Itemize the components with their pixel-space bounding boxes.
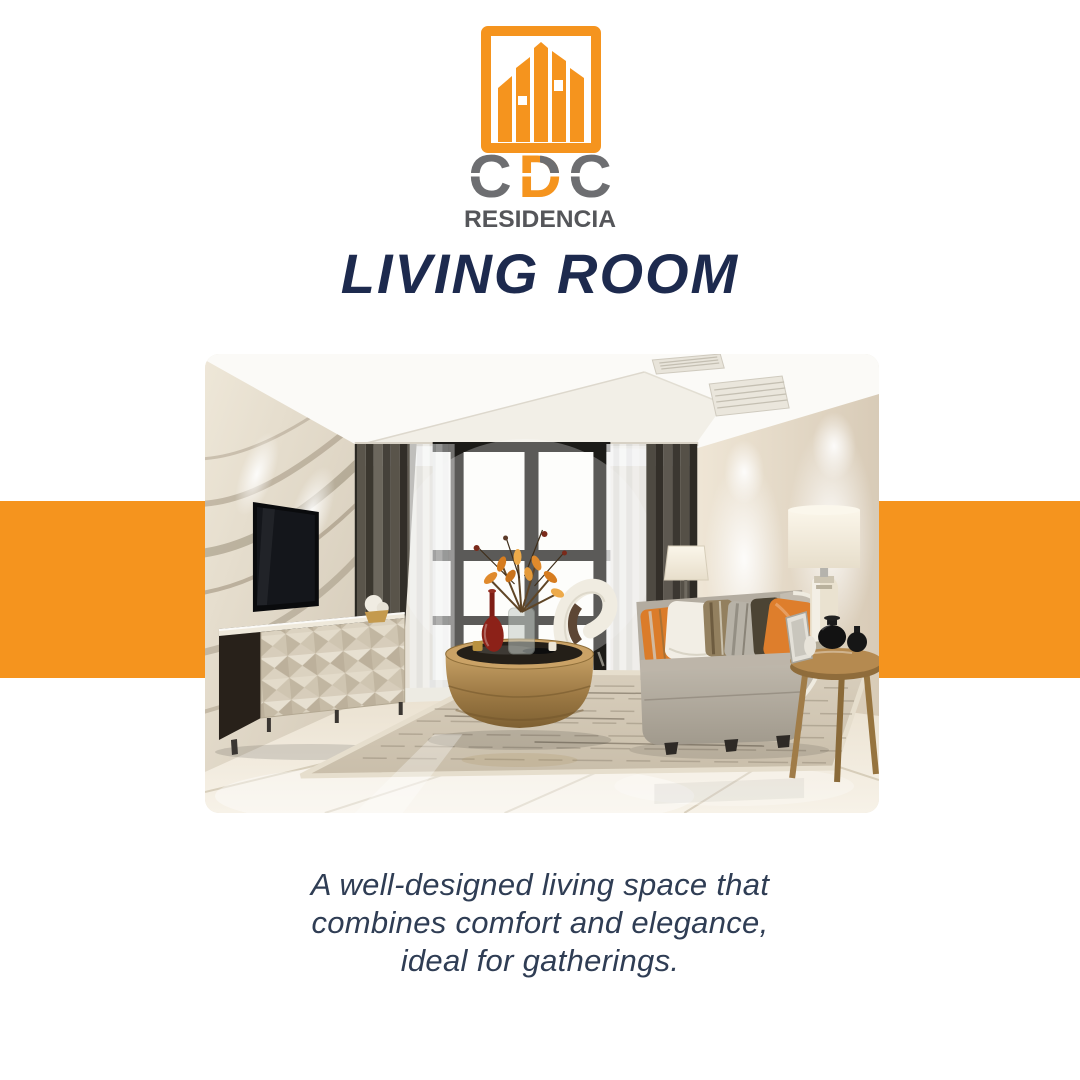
description-line: A well-designed living space that [0, 866, 1080, 904]
logo-wordmark: RESIDENCIA [464, 206, 616, 233]
tv-screen [253, 502, 319, 612]
logo-letters: C D D C [458, 143, 622, 210]
page-title: LIVING ROOM [0, 243, 1080, 305]
logo-skyline-icon [498, 42, 584, 142]
logo-split-line [458, 173, 622, 177]
cdc-residencia-logo: C D D C RESIDENCIA [420, 24, 660, 238]
logo-graphic: C D D C RESIDENCIA [420, 24, 660, 238]
description-text: A well-designed living space that combin… [0, 866, 1080, 980]
living-room-photo [205, 354, 879, 813]
living-room-scene [205, 354, 879, 813]
poster: C D D C RESIDENCIA LIVING ROOM [0, 0, 1080, 1080]
description-line: combines comfort and elegance, [0, 904, 1080, 942]
description-line: ideal for gatherings. [0, 942, 1080, 980]
